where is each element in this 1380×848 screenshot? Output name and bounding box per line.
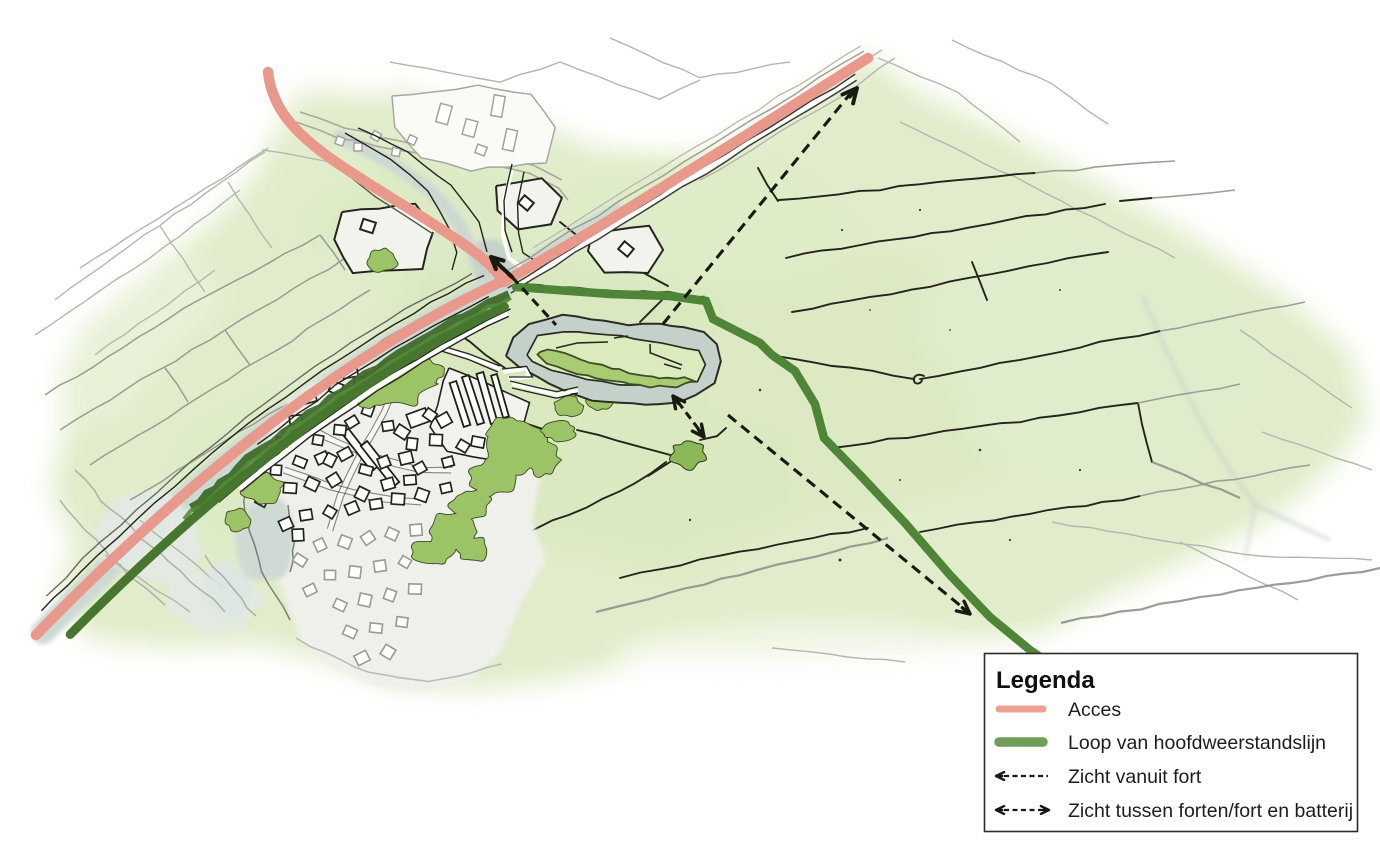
svg-text:Zicht tussen forten/fort en ba: Zicht tussen forten/fort en batterij	[1068, 800, 1353, 822]
svg-text:Acces: Acces	[1068, 699, 1121, 721]
svg-text:Loop van hoofdweerstandslijn: Loop van hoofdweerstandslijn	[1068, 732, 1326, 754]
svg-text:Legenda: Legenda	[996, 667, 1095, 694]
svg-text:Zicht vanuit fort: Zicht vanuit fort	[1068, 766, 1202, 788]
